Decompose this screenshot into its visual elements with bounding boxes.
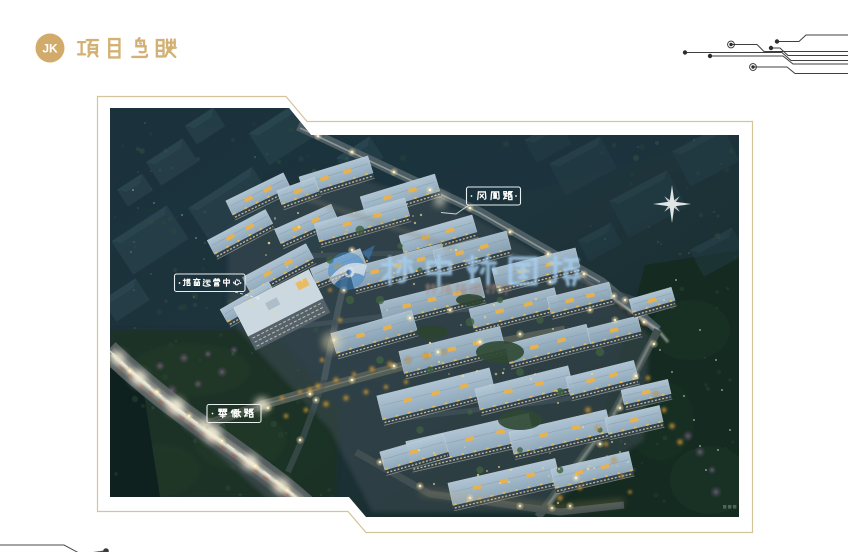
svg-text:JK: JK [42,42,58,56]
